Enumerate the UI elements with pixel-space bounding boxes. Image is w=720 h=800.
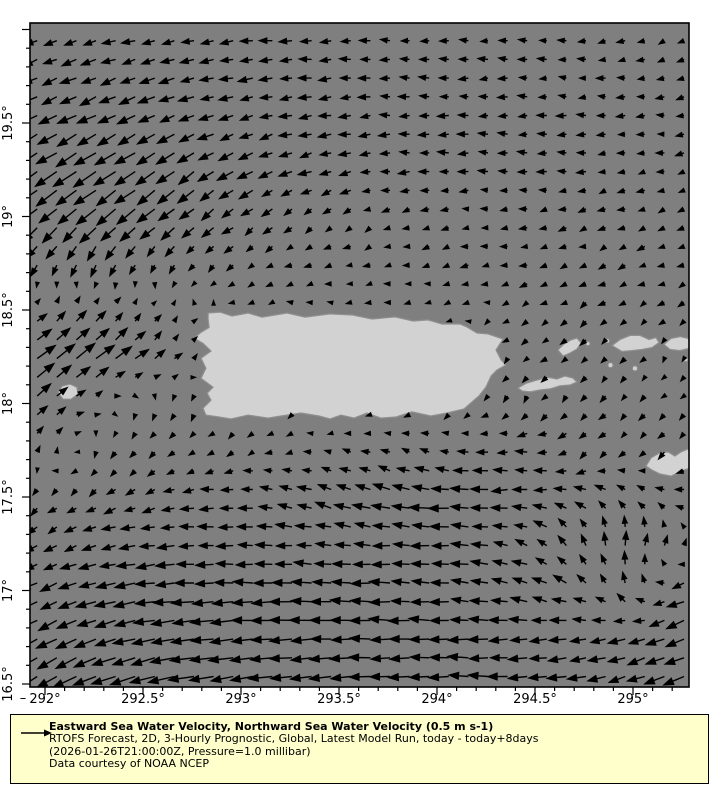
x-tick-label: 293° <box>225 692 256 707</box>
x-tick-label: 294.5° <box>513 692 557 707</box>
y-tick-label: 18° <box>1 392 16 415</box>
y-tick-label: 19.5° <box>1 105 16 140</box>
y-tick-label: 19° <box>1 205 16 228</box>
legend: Eastward Sea Water Velocity, Northward S… <box>10 714 709 784</box>
island-puerto-rico <box>194 312 506 419</box>
x-tick-label: 295° <box>617 692 648 707</box>
y-tick-label: 17.5° <box>1 479 16 514</box>
x-tick-label: 292.5° <box>121 692 165 707</box>
islet <box>632 366 637 371</box>
reference-arrow-icon <box>19 727 53 739</box>
velocity-quiver-map: 292°292.5°293°293.5°294°294.5°295°–16.5°… <box>0 0 720 712</box>
axis-corner-dash: – <box>20 691 27 706</box>
islet <box>608 363 613 368</box>
legend-source-line: RTOFS Forecast, 2D, 3-Hourly Prognostic,… <box>49 733 702 745</box>
legend-credit-line: Data courtesy of NOAA NCEP <box>49 758 702 770</box>
y-tick-label: 18.5° <box>1 292 16 327</box>
y-tick-label: 16.5° <box>1 666 16 701</box>
legend-text-block: Eastward Sea Water Velocity, Northward S… <box>49 721 702 770</box>
x-tick-label: 292° <box>29 692 60 707</box>
y-tick-label: 17° <box>1 579 16 602</box>
x-tick-label: 293.5° <box>317 692 361 707</box>
x-tick-label: 294° <box>421 692 452 707</box>
